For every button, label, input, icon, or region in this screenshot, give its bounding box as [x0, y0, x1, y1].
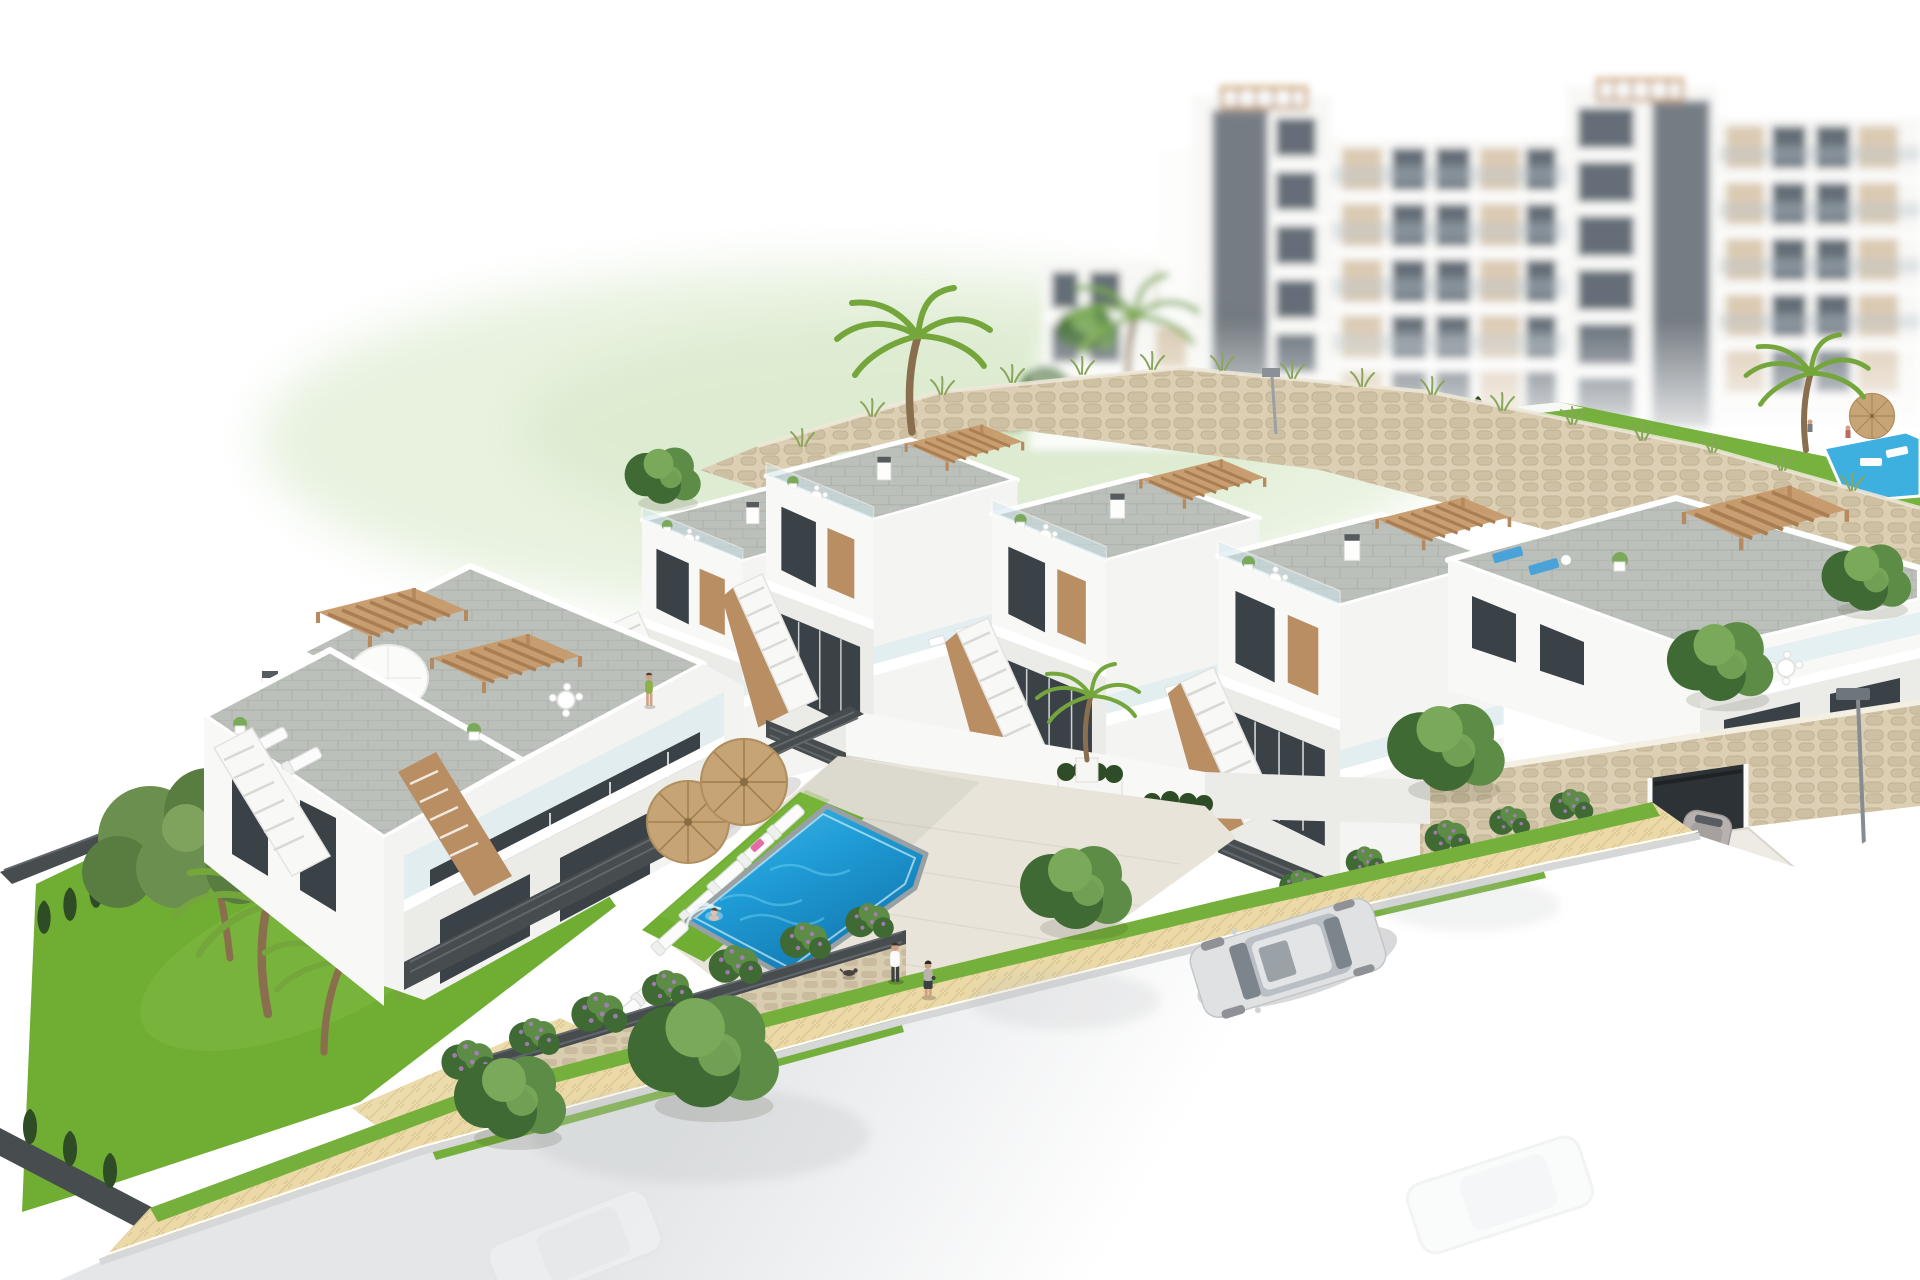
- pool-umbrella: [701, 739, 787, 825]
- architectural-render: [0, 0, 1920, 1280]
- tree-shadow: [970, 970, 1160, 1030]
- render-canvas: [0, 0, 1920, 1280]
- tree-shadow: [1380, 879, 1560, 931]
